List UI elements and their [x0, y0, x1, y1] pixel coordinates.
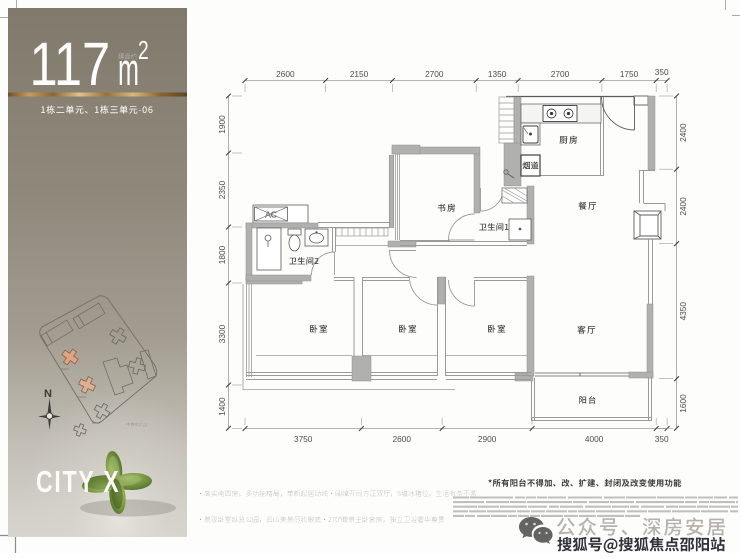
svg-text:2700: 2700	[425, 69, 444, 79]
svg-text:CITY X: CITY X	[36, 464, 121, 499]
svg-text:1400: 1400	[217, 397, 227, 416]
svg-text:AC: AC	[265, 210, 277, 220]
svg-text:2600: 2600	[393, 434, 412, 444]
svg-text:350: 350	[655, 67, 669, 77]
svg-text:1600: 1600	[678, 394, 688, 413]
svg-text:2150: 2150	[350, 69, 369, 79]
svg-text:2400: 2400	[678, 197, 688, 216]
svg-text:350: 350	[655, 434, 669, 444]
svg-text:2900: 2900	[478, 434, 497, 444]
svg-text:1800: 1800	[217, 245, 227, 264]
svg-text:2600: 2600	[276, 69, 295, 79]
svg-text:3300: 3300	[217, 324, 227, 343]
svg-text:2350: 2350	[217, 180, 227, 199]
svg-text:2400: 2400	[678, 123, 688, 142]
svg-text:4350: 4350	[678, 302, 688, 321]
svg-text:2700: 2700	[551, 69, 570, 79]
svg-text:1750: 1750	[620, 69, 639, 79]
svg-text:1350: 1350	[488, 69, 507, 79]
svg-text:1900: 1900	[217, 115, 227, 134]
svg-text:N: N	[44, 388, 52, 400]
svg-text:4000: 4000	[585, 434, 604, 444]
svg-text:3750: 3750	[294, 434, 313, 444]
svg-text:117: 117	[30, 30, 111, 99]
svg-text:2: 2	[138, 35, 149, 65]
svg-text:m: m	[118, 44, 139, 95]
